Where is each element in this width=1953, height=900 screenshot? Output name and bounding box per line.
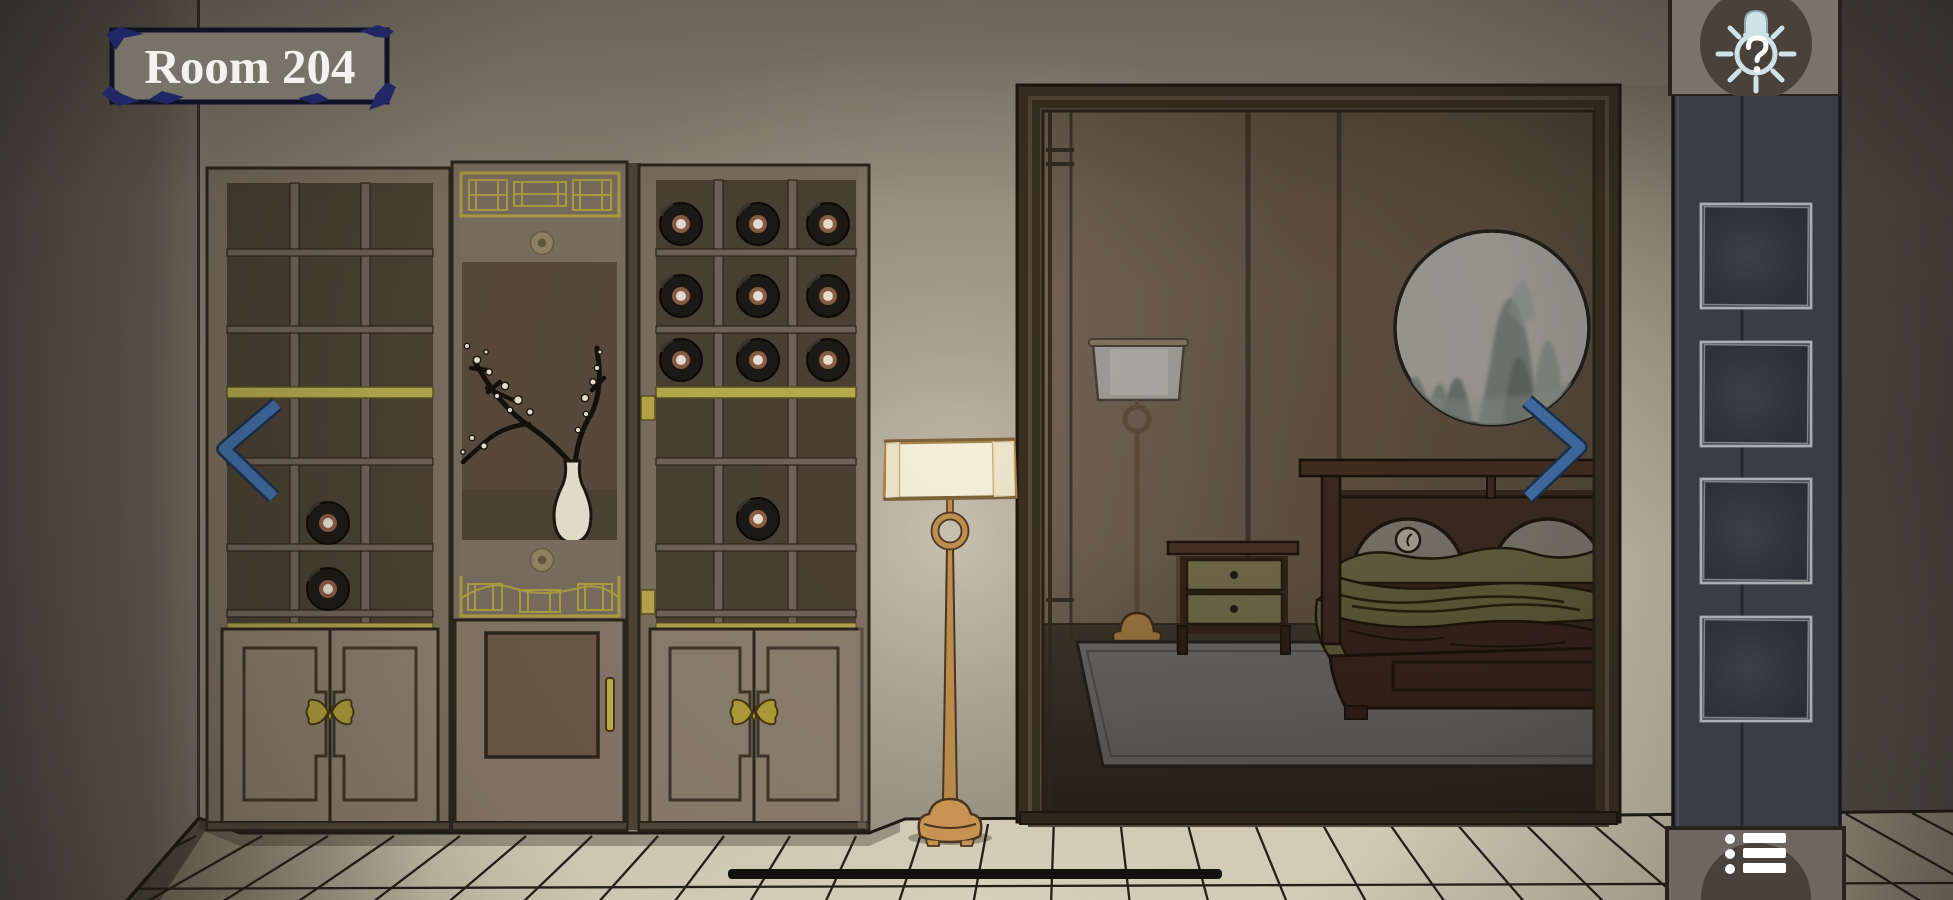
- svg-text:Room 204: Room 204: [145, 39, 356, 94]
